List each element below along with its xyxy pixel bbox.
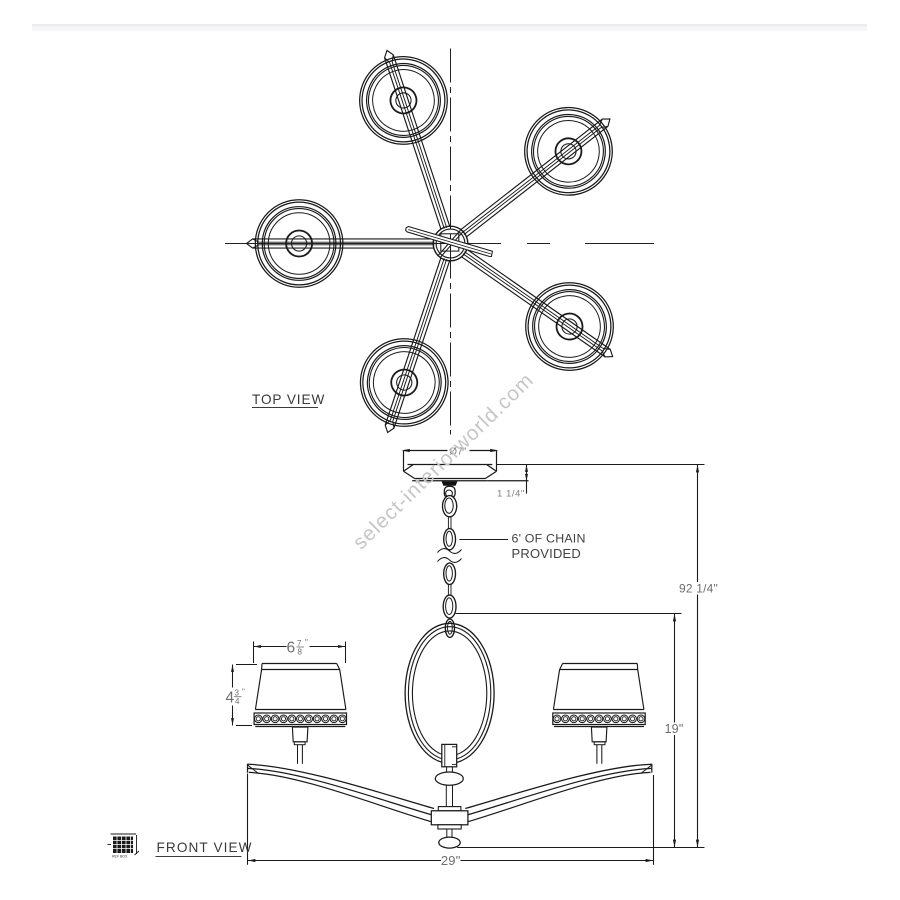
svg-text:": ": [242, 688, 245, 697]
svg-text:4: 4: [226, 690, 235, 707]
svg-text:7: 7: [297, 639, 302, 648]
svg-text:": ": [305, 638, 308, 647]
svg-text:8: 8: [298, 648, 303, 657]
svg-text:4: 4: [235, 697, 240, 706]
svg-text:FRONT VIEW: FRONT VIEW: [157, 840, 253, 855]
svg-text:PROVIDED: PROVIDED: [512, 546, 582, 561]
svg-text:TOP VIEW: TOP VIEW: [252, 392, 325, 407]
svg-text:6: 6: [287, 640, 296, 657]
svg-text:92 1/4": 92 1/4": [679, 582, 718, 596]
svg-text:3: 3: [235, 689, 240, 698]
svg-text:19": 19": [664, 722, 683, 736]
svg-text:6' OF CHAIN: 6' OF CHAIN: [512, 532, 586, 546]
svg-text:1 1/4": 1 1/4": [497, 489, 525, 500]
svg-text:REF BOX: REF BOX: [112, 855, 128, 859]
svg-text:29": 29": [441, 853, 461, 868]
